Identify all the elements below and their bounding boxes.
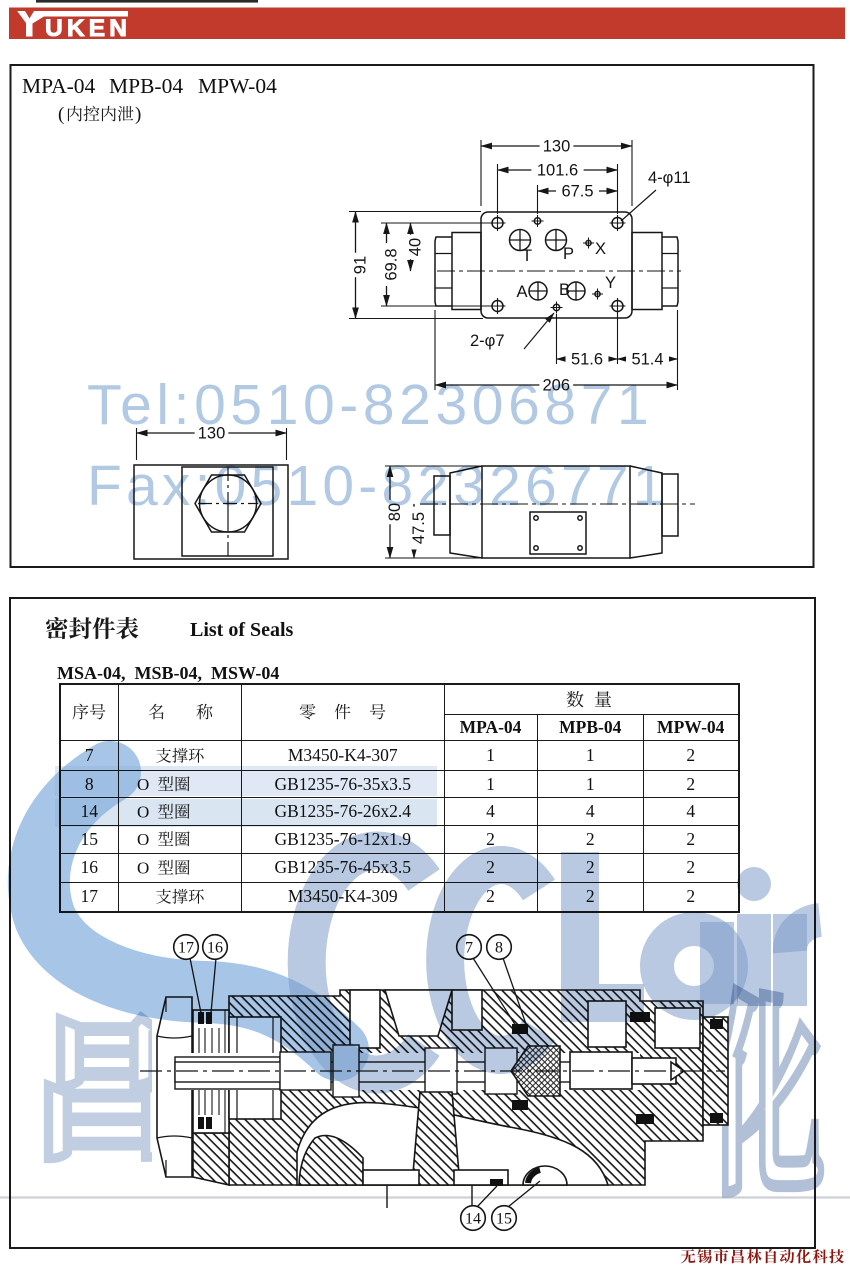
svg-text:Tel:0510-82306871: Tel:0510-82306871 xyxy=(87,373,653,437)
svg-text:Fax:0510-82326771: Fax:0510-82326771 xyxy=(87,454,669,518)
